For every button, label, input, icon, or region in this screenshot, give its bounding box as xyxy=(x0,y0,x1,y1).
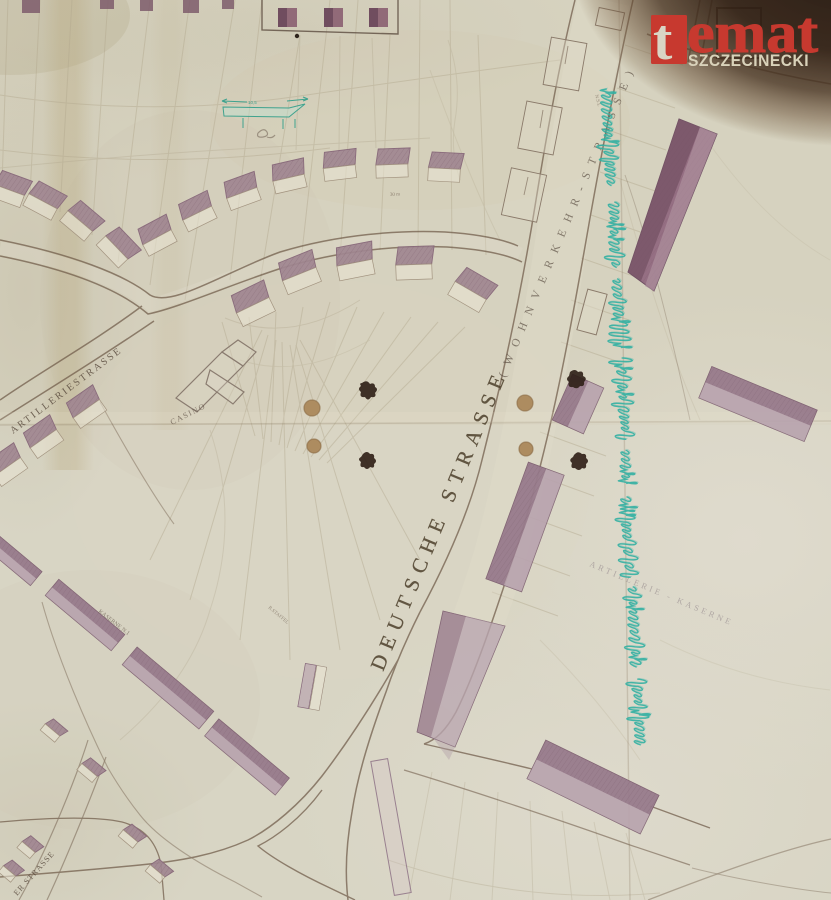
svg-text:t: t xyxy=(653,7,673,72)
svg-text:10,5: 10,5 xyxy=(248,100,257,105)
svg-text:30 m: 30 m xyxy=(390,192,401,198)
svg-text:SZCZECINECKI: SZCZECINECKI xyxy=(688,51,809,70)
